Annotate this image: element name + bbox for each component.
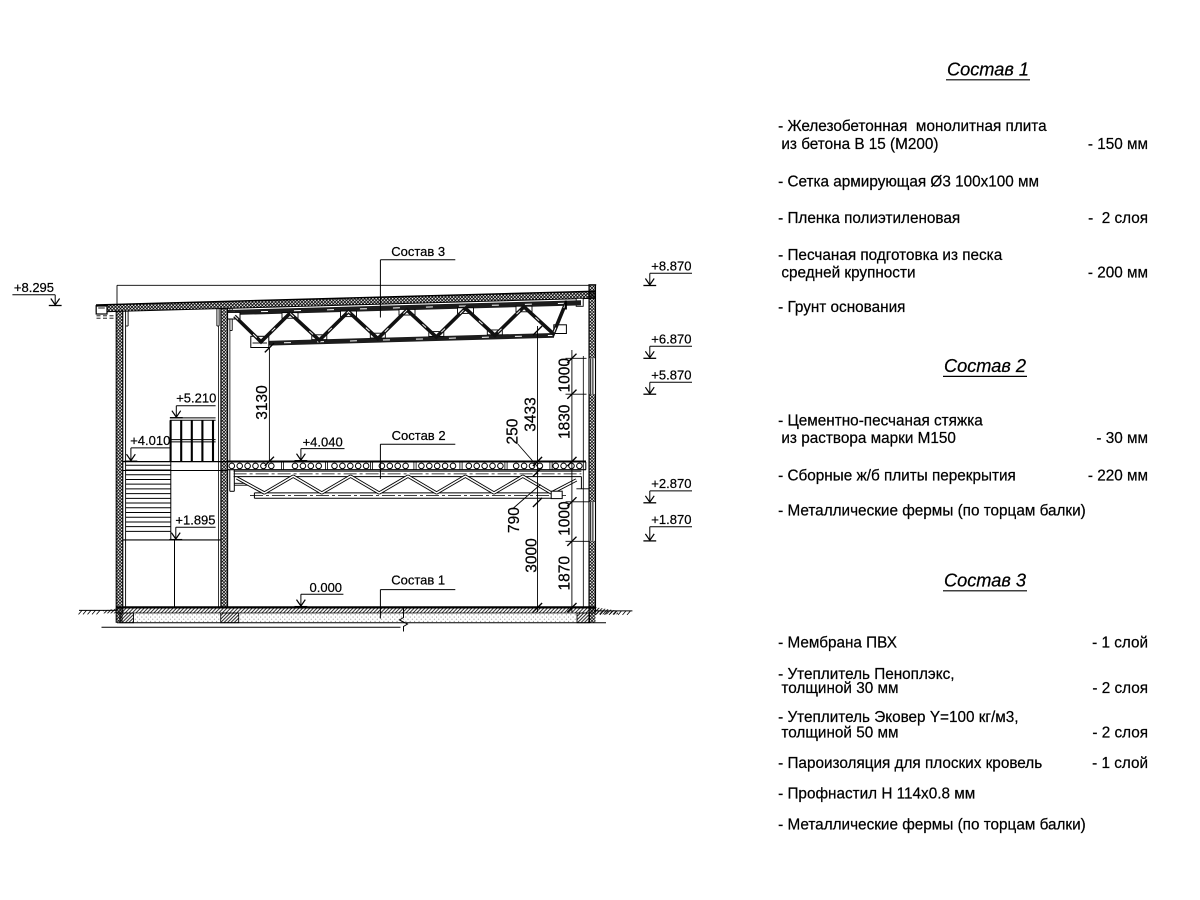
svg-text:Состав 2: Состав 2 — [944, 356, 1026, 376]
svg-text:- 150 мм: - 150 мм — [1088, 136, 1148, 153]
svg-text:Состав 2: Состав 2 — [392, 428, 446, 443]
svg-text:+4.010: +4.010 — [130, 433, 170, 448]
svg-text:250: 250 — [505, 418, 522, 444]
svg-text:0.000: 0.000 — [310, 580, 343, 595]
svg-text:- Мембрана ПВХ: - Мембрана ПВХ — [778, 635, 897, 652]
svg-text:- Пленка полиэтиленовая: - Пленка полиэтиленовая — [778, 210, 960, 227]
svg-text:- 200 мм: - 200 мм — [1088, 265, 1148, 282]
svg-text:+6.870: +6.870 — [651, 331, 691, 346]
svg-text:Состав 3: Состав 3 — [944, 571, 1026, 591]
svg-text:толщиной 50 мм: толщиной 50 мм — [781, 724, 898, 741]
svg-text:3130: 3130 — [254, 385, 271, 420]
svg-text:Состав 1: Состав 1 — [391, 573, 445, 588]
svg-text:- 2 слоя: - 2 слоя — [1092, 724, 1148, 741]
svg-text:+2.870: +2.870 — [651, 476, 691, 491]
svg-text:1000: 1000 — [556, 501, 573, 536]
svg-text:- 1 слой: - 1 слой — [1092, 635, 1148, 652]
svg-text:- Железобетонная монолитная п: - Железобетонная монолитная плита — [778, 118, 1047, 135]
svg-text:3433: 3433 — [522, 397, 539, 431]
svg-text:1830: 1830 — [556, 404, 573, 439]
svg-text:из раствора марки М150: из раствора марки М150 — [781, 430, 956, 447]
svg-text:1870: 1870 — [556, 556, 573, 591]
svg-text:Состав 3: Состав 3 — [391, 244, 445, 259]
svg-text:Состав 1: Состав 1 — [947, 60, 1029, 80]
svg-text:- 220 мм: - 220 мм — [1088, 468, 1148, 485]
svg-text:- Металлические фермы (по торц: - Металлические фермы (по торцам балки) — [778, 816, 1086, 833]
svg-text:- Пароизоляция для плоских кро: - Пароизоляция для плоских кровель — [778, 755, 1042, 772]
svg-text:+5.870: +5.870 — [651, 367, 691, 382]
svg-text:средней крупности: средней крупности — [781, 265, 915, 282]
svg-text:- 30 мм: - 30 мм — [1096, 430, 1148, 447]
svg-text:1000: 1000 — [556, 358, 573, 393]
svg-text:+1.870: +1.870 — [651, 512, 691, 527]
svg-text:- Грунт основания: - Грунт основания — [778, 299, 905, 316]
svg-text:толщиной 30 мм: толщиной 30 мм — [781, 680, 898, 697]
svg-text:- 2 слоя: - 2 слоя — [1088, 210, 1148, 227]
svg-text:+4.040: +4.040 — [303, 434, 343, 449]
svg-text:+5.210: +5.210 — [176, 391, 216, 406]
svg-text:- Песчаная подготовка из песка: - Песчаная подготовка из песка — [778, 247, 1003, 264]
svg-text:+8.295: +8.295 — [14, 280, 54, 295]
svg-text:- Металлические фермы (по торц: - Металлические фермы (по торцам балки) — [778, 503, 1086, 520]
svg-text:- 2 слоя: - 2 слоя — [1092, 680, 1148, 697]
svg-text:- Профнастил Н 114х0.8 мм: - Профнастил Н 114х0.8 мм — [778, 786, 975, 803]
svg-text:3000: 3000 — [523, 538, 540, 573]
svg-text:- Сетка армирующая Ø3 100х100: - Сетка армирующая Ø3 100х100 мм — [778, 174, 1039, 191]
svg-text:+1.895: +1.895 — [175, 512, 215, 527]
svg-text:- Сборные ж/б плиты перекрытия: - Сборные ж/б плиты перекрытия — [778, 468, 1016, 485]
svg-text:- 1 слой: - 1 слой — [1092, 755, 1148, 772]
svg-text:- Цементно-песчаная стяжка: - Цементно-песчаная стяжка — [778, 413, 983, 430]
svg-text:из бетона В 15 (М200): из бетона В 15 (М200) — [781, 136, 938, 153]
svg-text:+8.870: +8.870 — [651, 258, 691, 273]
svg-text:790: 790 — [506, 507, 523, 533]
